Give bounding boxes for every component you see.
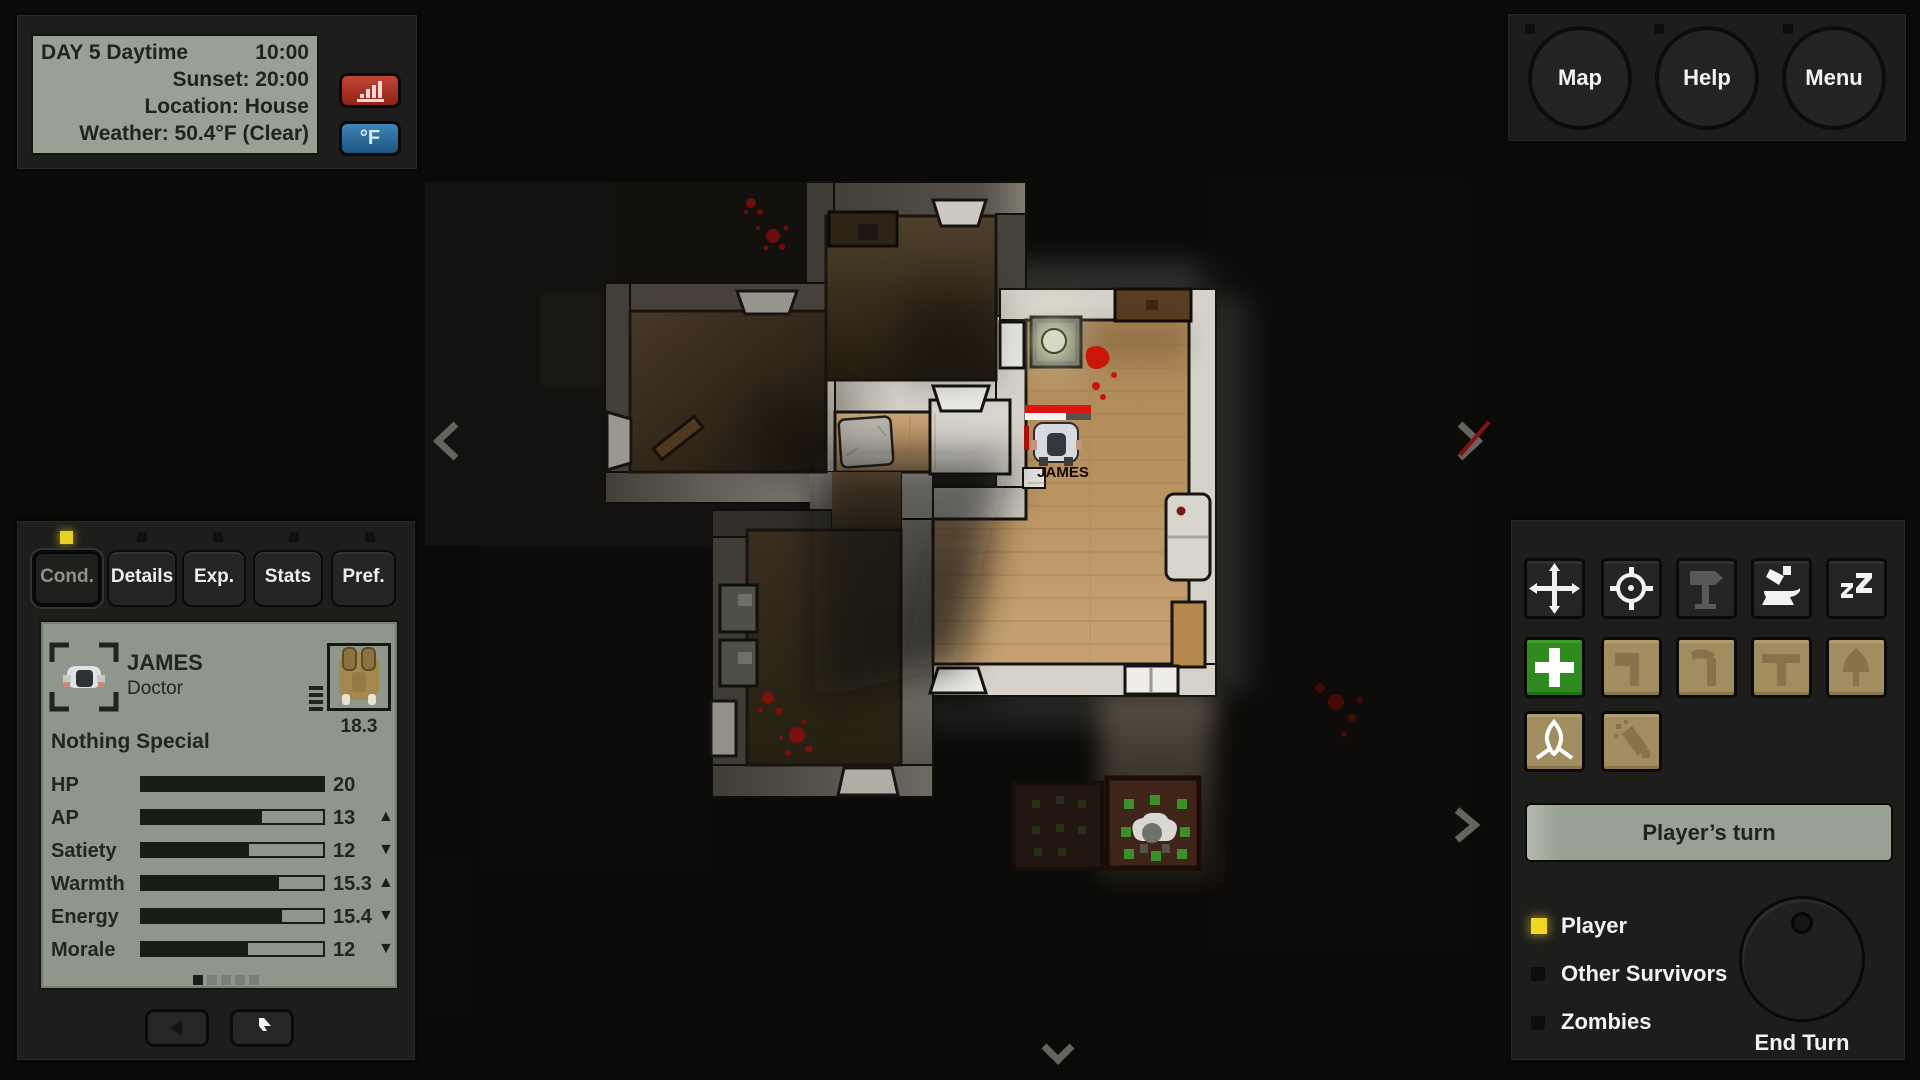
svg-text:JAMES: JAMES bbox=[1037, 464, 1089, 481]
